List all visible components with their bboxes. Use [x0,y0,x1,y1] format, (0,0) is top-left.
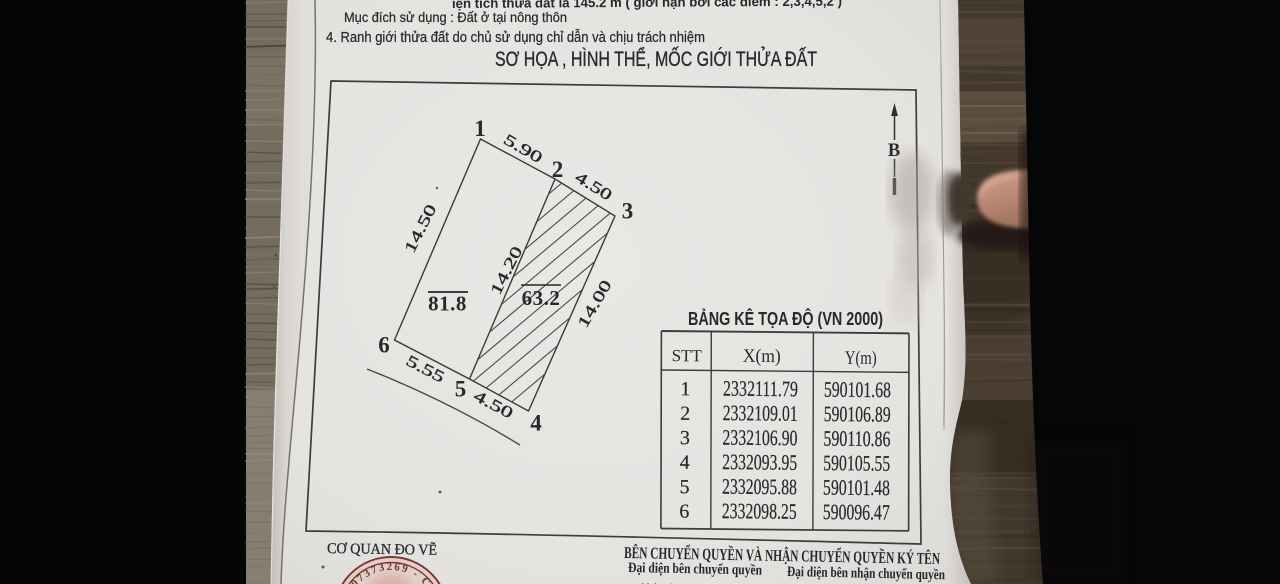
svg-text:5: 5 [455,377,467,402]
svg-text:63.2: 63.2 [522,286,561,310]
svg-text:590105.55: 590105.55 [823,450,890,476]
svg-text:STT: STT [672,346,703,365]
svg-text:2332111.79: 2332111.79 [723,376,798,402]
svg-text:Đại diện bên nhận chuyển quyền: Đại diện bên nhận chuyển quyền [787,564,945,583]
svg-text:6: 6 [679,501,689,523]
svg-text:4: 4 [530,411,542,436]
svg-text:SƠ HỌA , HÌNH THỂ, MỐC GIỚI TH: SƠ HỌA , HÌNH THỂ, MỐC GIỚI THỬA ĐẤT [495,47,817,71]
svg-text:1: 1 [680,378,690,400]
svg-text:590101.68: 590101.68 [824,377,891,403]
svg-text:81.8: 81.8 [428,292,467,316]
svg-text:X(m): X(m) [743,346,781,367]
svg-text:3: 3 [622,199,634,224]
svg-text:590110.86: 590110.86 [823,426,890,452]
svg-text:590106.89: 590106.89 [824,401,891,427]
svg-text:2332098.25: 2332098.25 [722,498,797,524]
svg-text:2332106.90: 2332106.90 [722,425,797,451]
svg-text:2332109.01: 2332109.01 [723,400,798,426]
svg-text:2: 2 [680,403,690,425]
svg-text:2332095.88: 2332095.88 [722,474,797,500]
svg-text:2332093.95: 2332093.95 [722,449,797,475]
svg-text:590096.47: 590096.47 [823,499,890,525]
svg-text:CƠ QUAN ĐO VẼ: CƠ QUAN ĐO VẼ [327,541,437,559]
svg-text:Đại diện bên chuyển quyền: Đại diện bên chuyển quyền [628,560,762,579]
svg-text:4. Ranh giới thửa đất do chủ s: 4. Ranh giới thửa đất do chủ sử dụng chỉ… [326,29,705,46]
svg-text:2: 2 [552,157,564,182]
svg-text:590101.48: 590101.48 [823,475,890,501]
svg-text:1: 1 [474,116,486,141]
svg-text:BẢNG KÊ TỌA ĐỘ (VN 2000): BẢNG KÊ TỌA ĐỘ (VN 2000) [688,308,883,329]
svg-text:6: 6 [378,333,390,358]
svg-text:3: 3 [680,427,690,449]
svg-text:B: B [888,141,900,161]
svg-text:Y(m): Y(m) [845,348,877,369]
svg-text:4: 4 [680,452,690,474]
svg-text:5: 5 [679,476,689,498]
svg-text:Mục đích sử dụng : Đất ở tại n: Mục đích sử dụng : Đất ở tại nông thôn [344,9,567,25]
